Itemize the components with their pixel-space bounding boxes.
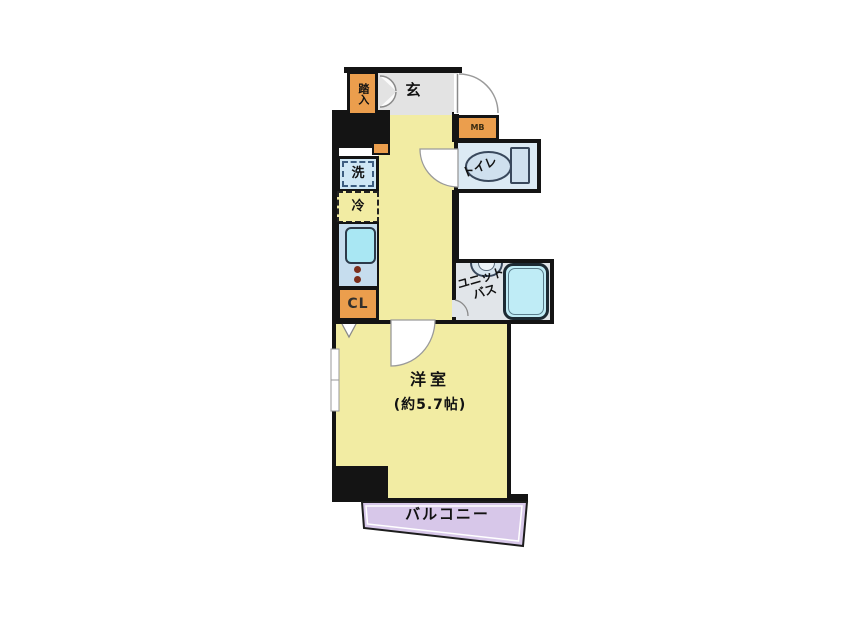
wall-right-extension: [507, 494, 528, 502]
wall-hall-right-lower: [452, 190, 459, 261]
genkan-tile-floor: [377, 71, 458, 115]
kitchen-sink: [345, 227, 376, 264]
stove-burner-dot-1: [354, 266, 361, 273]
toilet-tank: [510, 147, 530, 184]
washer-pan-outline: [342, 161, 374, 187]
entrance-door-arc-icon: [459, 74, 498, 113]
balcony-shape: [362, 502, 527, 546]
balcony-inner-line: [366, 506, 522, 541]
closet-box: [337, 287, 379, 321]
washer-box: [337, 156, 379, 192]
meter-box: [456, 115, 499, 141]
fumikomi-box: [347, 71, 378, 116]
toilet-bowl: [465, 151, 512, 182]
hallway-floor: [378, 115, 458, 320]
stove-burner-dot-2: [354, 276, 361, 283]
balcony-label: バルコニー: [390, 504, 505, 526]
shaft-box: [372, 142, 390, 155]
fridge-box: [337, 191, 379, 223]
bathtub-inner-rim: [508, 268, 544, 315]
bathtub: [503, 263, 549, 320]
pillar-bottom-left: [332, 466, 388, 502]
floor-plan-page: { "title": "apartment-floor-plan", "colo…: [0, 0, 852, 636]
